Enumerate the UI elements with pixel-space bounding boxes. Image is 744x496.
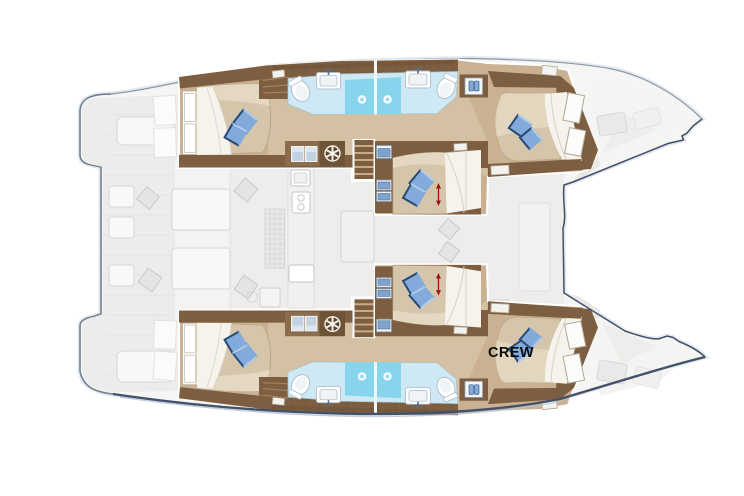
svg-text:CREW: CREW — [488, 345, 534, 361]
